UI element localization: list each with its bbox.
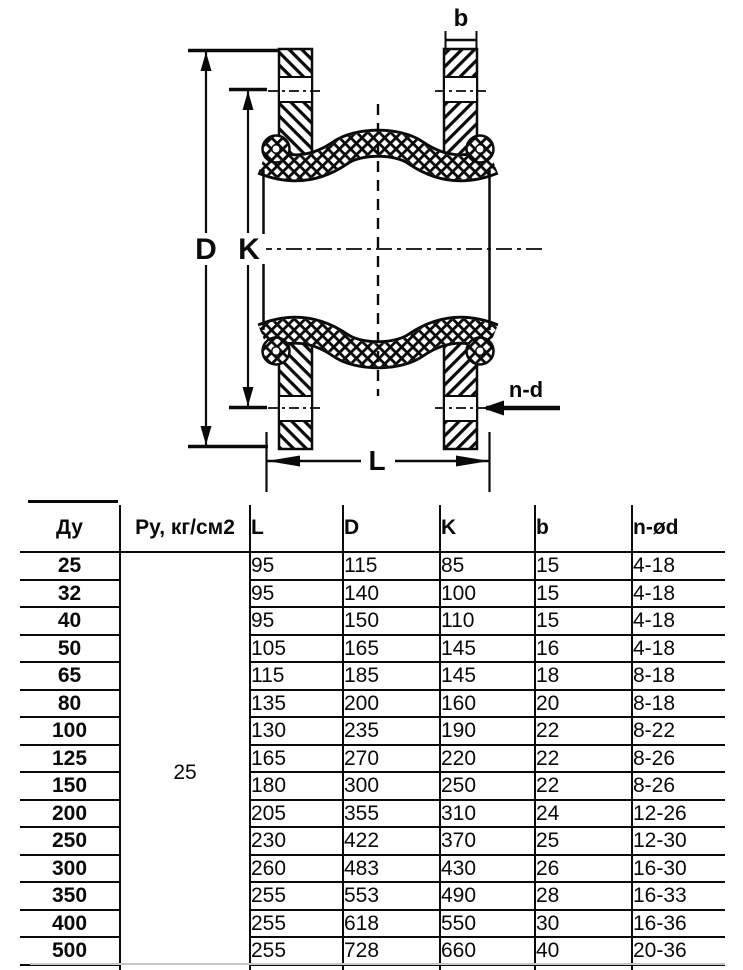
table-top-border-stub	[28, 500, 118, 503]
b-cell: 24	[535, 800, 632, 828]
b-cell: 22	[535, 772, 632, 800]
K-cell: 220	[440, 745, 535, 773]
L-cell: 135	[250, 690, 343, 718]
L-cell: 95	[250, 607, 343, 635]
nd-cell: 20-36	[632, 937, 725, 965]
K-cell: 190	[440, 717, 535, 745]
b-cell: 26	[535, 855, 632, 883]
column-header: Ду	[20, 505, 120, 552]
D-cell: 618	[343, 910, 440, 938]
b-cell: 20	[535, 690, 632, 718]
D-cell: 728	[343, 937, 440, 965]
nd-cell: 8-22	[632, 717, 725, 745]
K-cell: 145	[440, 635, 535, 663]
table-bottom-faint-line	[30, 963, 725, 965]
dimensions-table: ДуРу, кг/см2LDKbn-ød 25259511585154-1832…	[20, 505, 725, 970]
nd-cell: 20-39	[632, 965, 725, 970]
dim-label-L: L	[368, 445, 385, 476]
dim-label-K: K	[238, 233, 260, 266]
py-merged-cell: 25	[120, 552, 250, 970]
L-cell: 95	[250, 580, 343, 608]
du-cell: 350	[20, 882, 120, 910]
L-cell: 130	[250, 717, 343, 745]
column-header: D	[343, 505, 440, 552]
D-cell: 115	[343, 552, 440, 580]
K-cell: 85	[440, 552, 535, 580]
du-cell: 300	[20, 855, 120, 883]
du-cell: 250	[20, 827, 120, 855]
K-cell: 490	[440, 882, 535, 910]
D-cell: 843	[343, 965, 440, 970]
b-cell: 28	[535, 882, 632, 910]
dim-label-D: D	[195, 233, 217, 266]
D-cell: 200	[343, 690, 440, 718]
nd-cell: 16-36	[632, 910, 725, 938]
K-cell: 370	[440, 827, 535, 855]
K-cell: 250	[440, 772, 535, 800]
K-cell: 550	[440, 910, 535, 938]
L-cell: 255	[250, 937, 343, 965]
L-cell: 180	[250, 772, 343, 800]
K-cell: 430	[440, 855, 535, 883]
column-header: b	[535, 505, 632, 552]
column-header: L	[250, 505, 343, 552]
b-cell: 55	[535, 965, 632, 970]
du-cell: 150	[20, 772, 120, 800]
D-cell: 140	[343, 580, 440, 608]
du-cell: 200	[20, 800, 120, 828]
page: D K L b n-d	[0, 0, 743, 970]
b-cell: 16	[535, 635, 632, 663]
D-cell: 553	[343, 882, 440, 910]
D-cell: 300	[343, 772, 440, 800]
du-cell: 125	[20, 745, 120, 773]
D-cell: 355	[343, 800, 440, 828]
K-cell: 145	[440, 662, 535, 690]
table-body: 25259511585154-183295140100154-184095150…	[20, 552, 725, 970]
D-cell: 235	[343, 717, 440, 745]
table-row: 25259511585154-18	[20, 552, 725, 580]
D-cell: 270	[343, 745, 440, 773]
b-cell: 18	[535, 662, 632, 690]
nd-cell: 8-26	[632, 772, 725, 800]
b-cell: 15	[535, 607, 632, 635]
L-cell: 105	[250, 635, 343, 663]
D-cell: 422	[343, 827, 440, 855]
nd-cell: 4-18	[632, 580, 725, 608]
b-cell: 15	[535, 552, 632, 580]
K-cell: 310	[440, 800, 535, 828]
du-cell: 100	[20, 717, 120, 745]
L-cell: 230	[250, 827, 343, 855]
L-cell: 95	[250, 552, 343, 580]
nd-cell: 8-26	[632, 745, 725, 773]
K-cell: 110	[440, 607, 535, 635]
du-cell: 65	[20, 662, 120, 690]
column-header: n-ød	[632, 505, 725, 552]
du-cell: 32	[20, 580, 120, 608]
du-cell: 500	[20, 937, 120, 965]
b-cell: 22	[535, 717, 632, 745]
L-cell: 260	[250, 855, 343, 883]
column-header: Ру, кг/см2	[120, 505, 250, 552]
nd-cell: 16-30	[632, 855, 725, 883]
column-header: K	[440, 505, 535, 552]
D-cell: 483	[343, 855, 440, 883]
technical-drawing: D K L b n-d	[0, 0, 743, 500]
K-cell: 660	[440, 937, 535, 965]
body-outline	[264, 170, 490, 330]
L-cell: 260	[250, 965, 343, 970]
b-cell: 15	[535, 580, 632, 608]
nd-cell: 4-18	[632, 607, 725, 635]
b-cell: 22	[535, 745, 632, 773]
du-cell: 400	[20, 910, 120, 938]
du-cell: 50	[20, 635, 120, 663]
b-cell: 25	[535, 827, 632, 855]
K-cell: 160	[440, 690, 535, 718]
K-cell: 770	[440, 965, 535, 970]
nd-cell: 12-26	[632, 800, 725, 828]
L-cell: 255	[250, 910, 343, 938]
nd-cell: 4-18	[632, 635, 725, 663]
b-cell: 30	[535, 910, 632, 938]
dimension-b	[446, 31, 477, 49]
D-cell: 165	[343, 635, 440, 663]
D-cell: 150	[343, 607, 440, 635]
L-cell: 165	[250, 745, 343, 773]
table-header-row: ДуРу, кг/см2LDKbn-ød	[20, 505, 725, 552]
dim-label-n-d: n-d	[509, 377, 543, 402]
du-cell: 25	[20, 552, 120, 580]
nd-cell: 12-30	[632, 827, 725, 855]
nd-cell: 8-18	[632, 690, 725, 718]
K-cell: 100	[440, 580, 535, 608]
nd-cell: 4-18	[632, 552, 725, 580]
nd-cell: 16-33	[632, 882, 725, 910]
b-cell: 40	[535, 937, 632, 965]
L-cell: 115	[250, 662, 343, 690]
dim-label-b: b	[454, 5, 469, 32]
L-cell: 255	[250, 882, 343, 910]
du-cell: 600	[20, 965, 120, 970]
nd-cell: 8-18	[632, 662, 725, 690]
L-cell: 205	[250, 800, 343, 828]
callout-n-d	[482, 401, 560, 416]
D-cell: 185	[343, 662, 440, 690]
du-cell: 80	[20, 690, 120, 718]
du-cell: 40	[20, 607, 120, 635]
